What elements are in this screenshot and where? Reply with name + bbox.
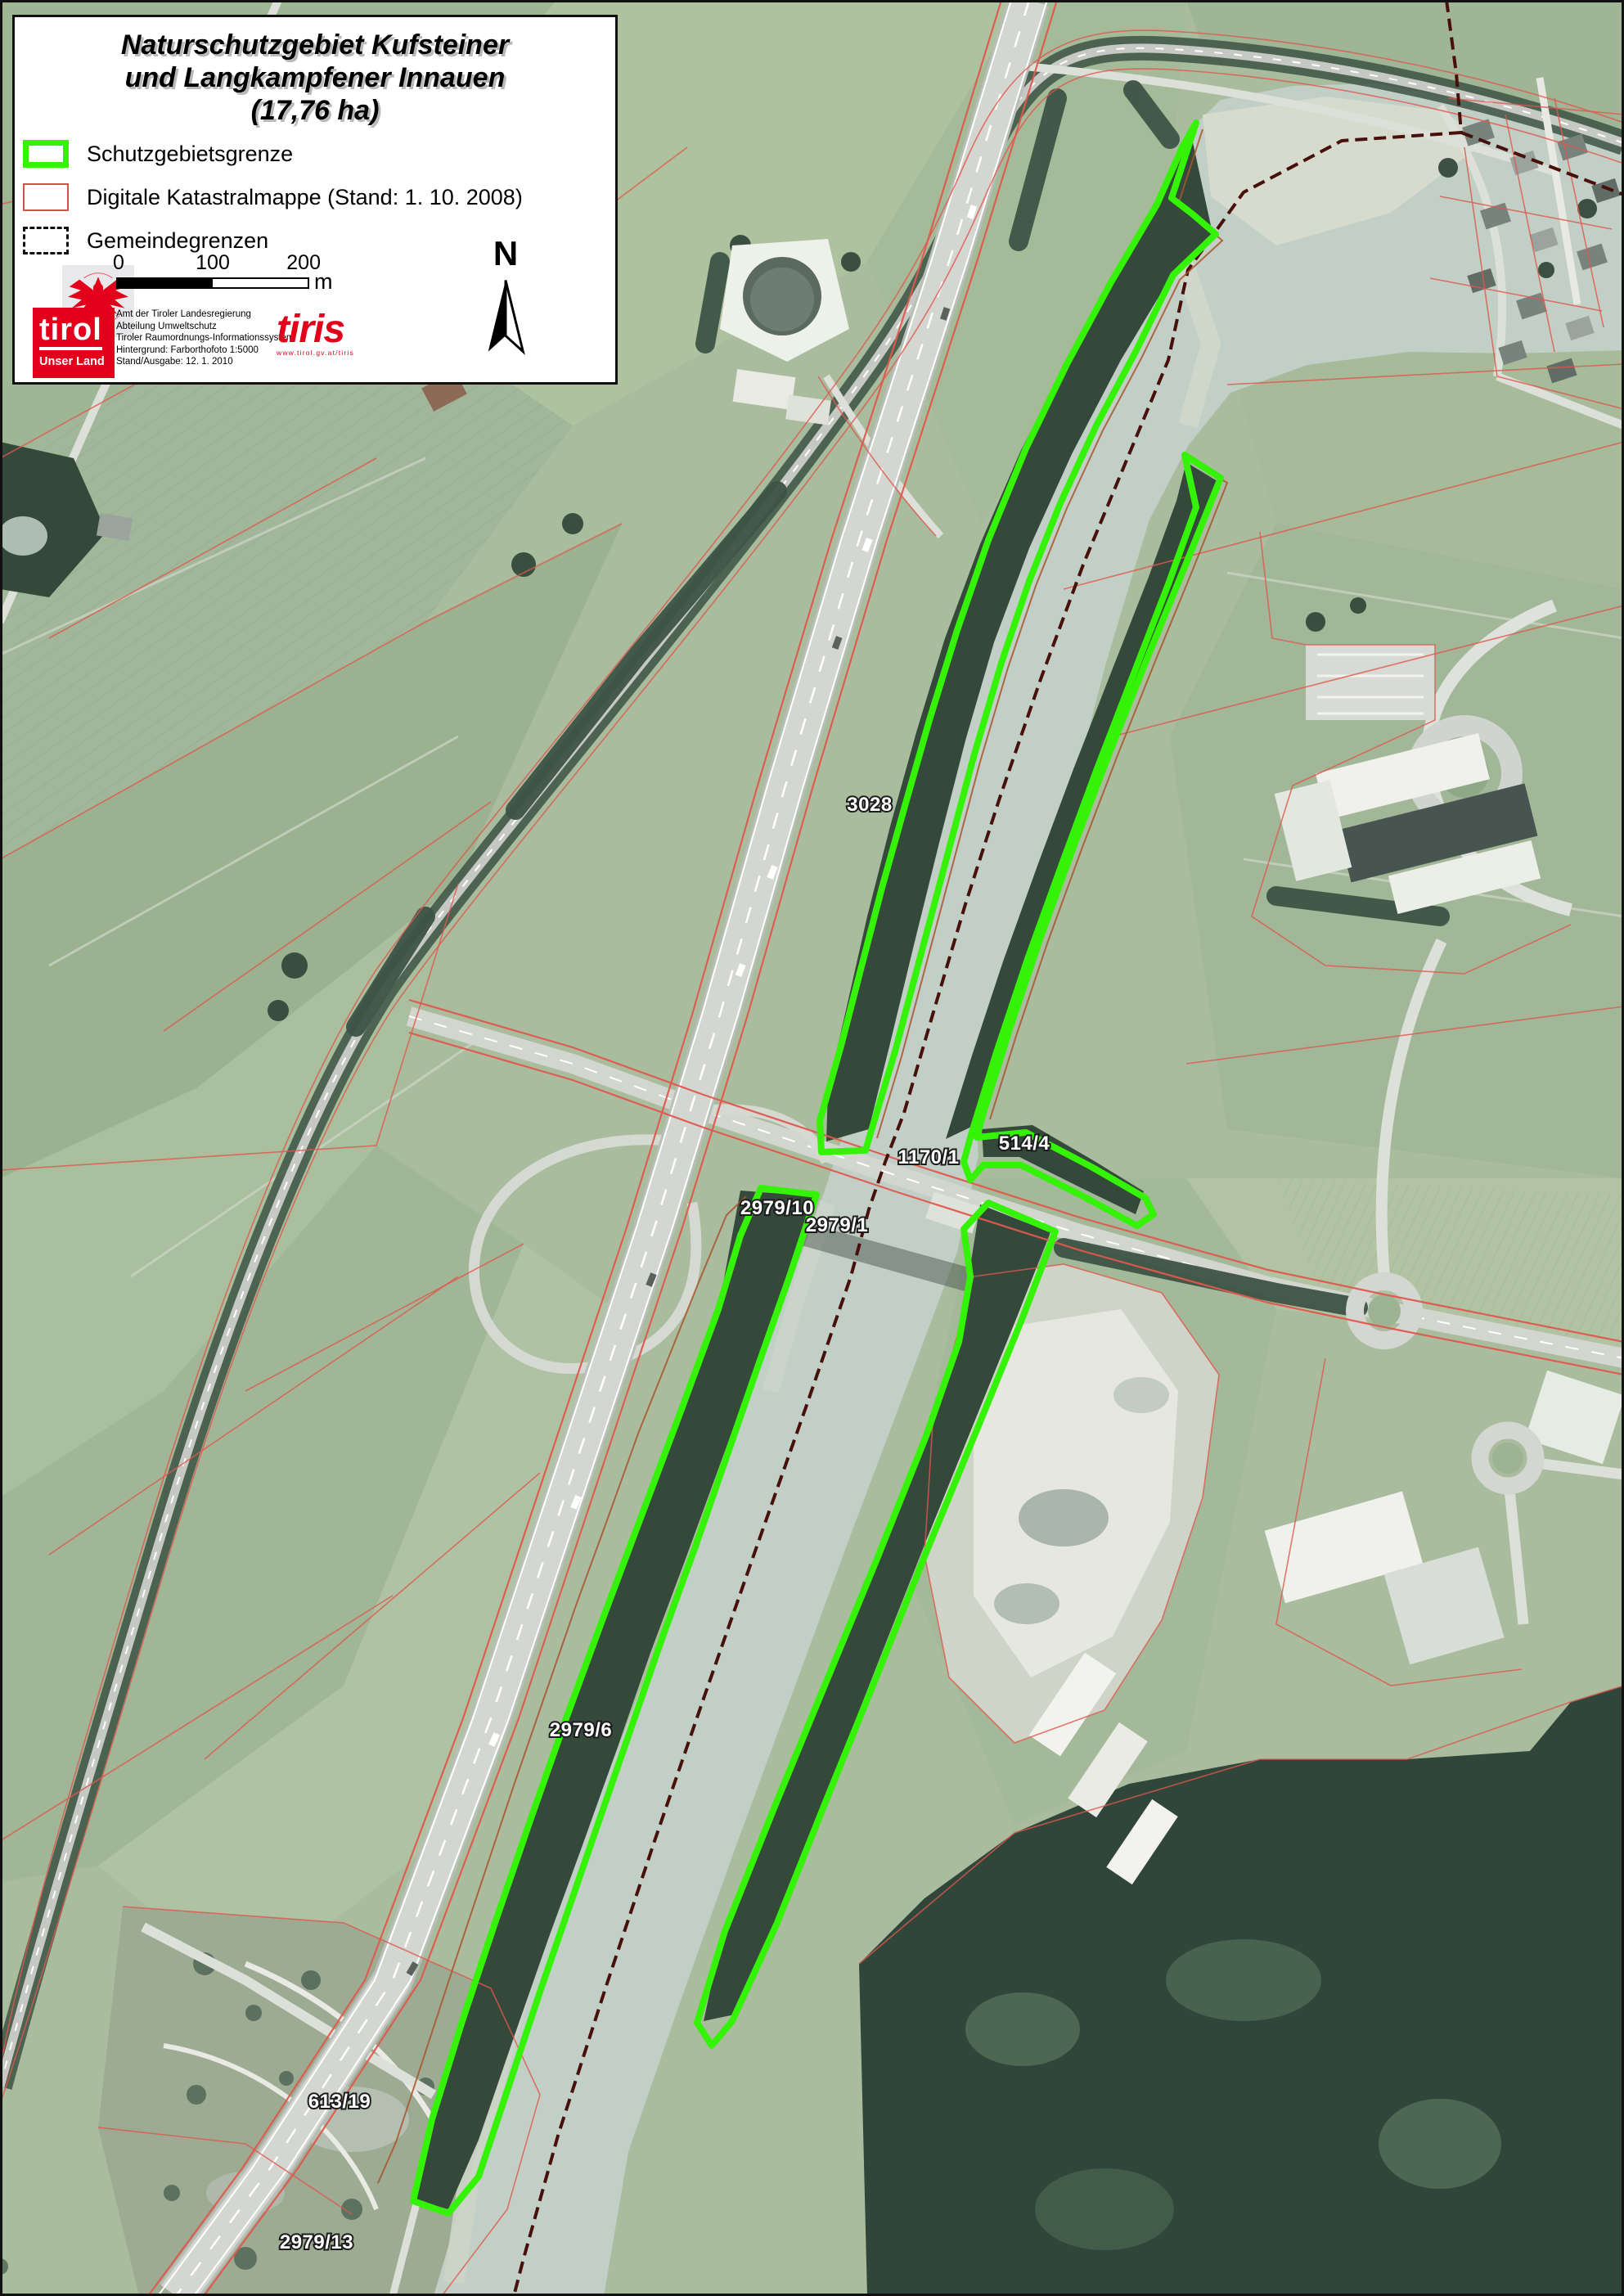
parcel-label: 2979/1 bbox=[806, 1214, 868, 1236]
parcel-label: 514/4 bbox=[999, 1132, 1050, 1155]
scale-bar-graphic bbox=[116, 277, 309, 289]
legend-item-municipal: Gemeindegrenzen bbox=[23, 227, 268, 254]
parcel-label: 2979/13 bbox=[280, 2231, 353, 2253]
north-arrow: N bbox=[473, 236, 538, 361]
cadastre-swatch bbox=[23, 183, 69, 211]
scale-bar: 0 100 200 m bbox=[116, 251, 362, 289]
parcel-label: 3028 bbox=[847, 794, 892, 816]
tirol-wordmark: tirol Unser Land bbox=[33, 308, 115, 378]
scale-tick-0: 0 bbox=[113, 251, 124, 275]
credits-block: Amt der Tiroler Landesregierung Abteilun… bbox=[116, 308, 295, 368]
credit-line: Abteilung Umweltschutz bbox=[116, 321, 295, 333]
map-title-line2: und Langkampfener Innauen bbox=[15, 61, 615, 94]
legend-item-cadastre: Digitale Katastralmappe (Stand: 1. 10. 2… bbox=[23, 183, 523, 211]
map-title: Naturschutzgebiet Kufsteiner und Langkam… bbox=[15, 29, 615, 127]
parcel-label: 1170/1 bbox=[897, 1146, 959, 1168]
protected-area-swatch bbox=[23, 140, 69, 168]
legend-item-protected-area: Schutzgebietsgrenze bbox=[23, 140, 293, 168]
north-label: N bbox=[473, 236, 538, 271]
info-panel: Naturschutzgebiet Kufsteiner und Langkam… bbox=[12, 15, 618, 385]
parcel-label: 2979/6 bbox=[550, 1719, 612, 1741]
parcel-label: 2979/10 bbox=[740, 1197, 814, 1219]
municipal-swatch bbox=[23, 227, 69, 254]
scale-unit: m bbox=[314, 269, 333, 295]
map-title-line3: (17,76 ha) bbox=[15, 94, 615, 127]
map-title-line1: Naturschutzgebiet Kufsteiner bbox=[15, 29, 615, 61]
map-export-page: { "panel": { "title": { "line1": "Naturs… bbox=[0, 0, 1624, 2296]
tirol-name: tirol bbox=[39, 314, 102, 350]
credit-line: Hintergrund: Farborthofoto 1:5000 bbox=[116, 344, 295, 357]
tirol-claim: Unser Land bbox=[39, 355, 105, 368]
credit-line: Amt der Tiroler Landesregierung bbox=[116, 308, 295, 321]
credit-line: Tiroler Raumordnungs-Informationssystem bbox=[116, 332, 295, 344]
tiris-logo: tiris www.tirol.gv.at/tiris bbox=[277, 312, 383, 357]
parcel-label: 613/19 bbox=[308, 2091, 371, 2113]
credit-line: Stand/Ausgabe: 12. 1. 2010 bbox=[116, 356, 295, 368]
legend-label: Schutzgebietsgrenze bbox=[87, 142, 293, 167]
tiris-url: www.tirol.gv.at/tiris bbox=[277, 349, 383, 357]
legend-label: Gemeindegrenzen bbox=[87, 228, 268, 254]
tiris-name: tiris bbox=[277, 312, 383, 348]
legend-label: Digitale Katastralmappe (Stand: 1. 10. 2… bbox=[87, 185, 523, 210]
north-arrow-icon bbox=[480, 276, 531, 361]
scale-tick-100: 100 bbox=[196, 251, 230, 275]
